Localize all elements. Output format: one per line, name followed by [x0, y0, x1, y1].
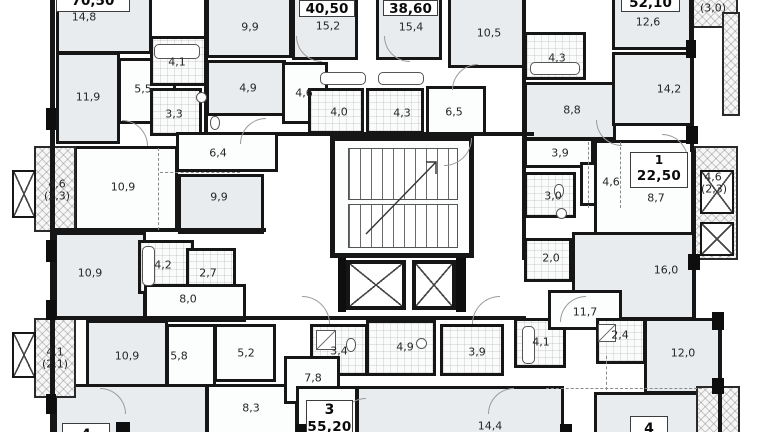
apartment-badge: 1 22,50	[630, 152, 688, 188]
zone-line	[588, 142, 589, 208]
room-area-label: 4,6	[704, 172, 722, 183]
room-area-label: 5,8	[170, 351, 188, 362]
room-area-label: (2,1)	[42, 359, 68, 370]
room-area-label: 6,4	[209, 148, 227, 159]
room-area-label: 9,9	[210, 192, 228, 203]
apartment-badge: 3 55,20	[306, 400, 353, 432]
room-area-label: 4,0	[330, 107, 348, 118]
room-area-label: 15,4	[399, 22, 424, 33]
wall-pier	[686, 126, 698, 144]
room-area-label: 4,3	[393, 108, 411, 119]
floor-plan: 70,50 40,50 38,60 52,10 1 22,50 3 55,20 …	[0, 0, 768, 432]
room-area-label: 3,4	[330, 346, 348, 357]
room-area-label: 4,6	[295, 88, 313, 99]
room-area-label: 11,9	[76, 92, 101, 103]
wall-pier	[46, 108, 56, 130]
interior-wall	[54, 316, 304, 320]
wall-pier	[686, 40, 696, 58]
room-area-label: 6,5	[445, 107, 463, 118]
door-arc	[302, 296, 330, 324]
room-area-label: 2,4	[611, 330, 629, 341]
sink-icon	[416, 338, 427, 349]
zone-line	[546, 388, 702, 389]
room-area-label: 3,3	[165, 109, 183, 120]
wall-pier	[46, 240, 56, 262]
apartment-badge-number: 4	[630, 416, 668, 432]
room-area-label: 4,2	[154, 260, 172, 271]
room-area-label: 2,0	[542, 253, 560, 264]
room-area-label: 7,8	[304, 373, 322, 384]
balcony-window-icon	[12, 170, 36, 218]
balcony-right-strip	[722, 12, 740, 116]
zone-line	[620, 142, 621, 208]
apartment-number: 3	[307, 401, 352, 419]
outer-wall-right-mid	[692, 150, 696, 320]
room-area-label: 5,5	[134, 84, 152, 95]
door-arc	[240, 118, 266, 144]
wall-pier	[560, 424, 572, 432]
room-area-label: 4,9	[396, 342, 414, 353]
room-area-label: 12,0	[671, 348, 696, 359]
apartment-divider-wall	[204, 0, 208, 132]
zone-line	[606, 356, 607, 390]
room-area-label: 4,1	[532, 337, 550, 348]
bathtub-icon	[378, 72, 424, 85]
room-area-label: 10,5	[477, 28, 502, 39]
room-9-9-b	[178, 174, 264, 234]
toilet-icon	[210, 116, 220, 130]
room-area-label: (2,3)	[701, 184, 727, 195]
zone-line	[160, 172, 240, 173]
door-arc	[472, 296, 500, 324]
sink-icon	[196, 92, 207, 103]
room-area-label: 4,1	[46, 347, 64, 358]
room-area-label: 4,9	[239, 83, 257, 94]
room-area-label: 4,6	[602, 177, 620, 188]
room-area-label: 3,0	[544, 191, 562, 202]
room-area-label: 8,0	[179, 294, 197, 305]
room-area-label: 4,6	[48, 179, 66, 190]
room-area-label: 4,3	[548, 53, 566, 64]
wall-pier	[456, 258, 466, 312]
room-area-label: 3,9	[468, 347, 486, 358]
elevator-icon	[412, 260, 456, 310]
elevator-icon	[346, 260, 406, 310]
room-area-label: 14,8	[72, 12, 97, 23]
bathtub-icon	[320, 72, 366, 85]
room-area-label: 14,4	[478, 421, 503, 432]
room-area-label: 14,2	[657, 84, 682, 95]
room-area-label: 3,9	[551, 148, 569, 159]
outer-wall-right-lower	[718, 316, 722, 432]
apartment-badge-total-area: 40,50	[299, 0, 355, 17]
apartment-badge-total-area: 70,50	[56, 0, 130, 12]
sink-icon	[556, 208, 567, 219]
wall-pier	[338, 258, 346, 312]
apartment-number: 1	[631, 153, 687, 168]
room-area-label: 11,7	[573, 307, 598, 318]
apartment-badge-total-area: 52,10	[621, 0, 680, 12]
room-area-label: 12,6	[636, 17, 661, 28]
wall-pier	[712, 312, 724, 330]
room-area-label: 8,7	[647, 193, 665, 204]
room-area-label: 2,7	[199, 268, 217, 279]
room-area-label: (3,0)	[700, 3, 726, 14]
apartment-badge-total-area: 38,60	[383, 0, 438, 16]
room-area-label: (2,3)	[44, 191, 70, 202]
wall-pier	[116, 422, 130, 432]
balcony-window-icon	[12, 332, 36, 378]
wall-pier	[712, 378, 724, 394]
room-area-label: 15,2	[316, 21, 341, 32]
apartment-badge-number: 4	[62, 423, 110, 432]
room-area-label: 8,8	[563, 105, 581, 116]
wall-pier	[46, 394, 56, 414]
room-area-label: 8,3	[242, 403, 260, 414]
room-area-label: 5,2	[237, 348, 255, 359]
apartment-total-area: 55,20	[307, 419, 352, 432]
room-14-4	[356, 386, 564, 432]
room-area-label: 10,9	[111, 182, 136, 193]
corridor-wall-top	[278, 132, 534, 136]
wall-pier	[46, 300, 56, 320]
room-area-label: 9,9	[241, 22, 259, 33]
bathtub-icon	[142, 246, 155, 286]
room-area-label: 16,0	[654, 265, 679, 276]
apartment-divider-wall	[522, 0, 526, 260]
room-14-2	[612, 52, 694, 126]
stair-direction-arrow-icon	[348, 148, 458, 248]
room-area-label: 10,9	[78, 268, 103, 279]
zone-line	[158, 148, 159, 230]
wall-pier	[688, 254, 700, 270]
room-area-label: 4,1	[168, 57, 186, 68]
balcony-window-icon	[700, 222, 734, 256]
room-area-label: 10,9	[115, 351, 140, 362]
interior-wall	[54, 228, 266, 232]
apartment-total-area: 22,50	[631, 168, 687, 185]
